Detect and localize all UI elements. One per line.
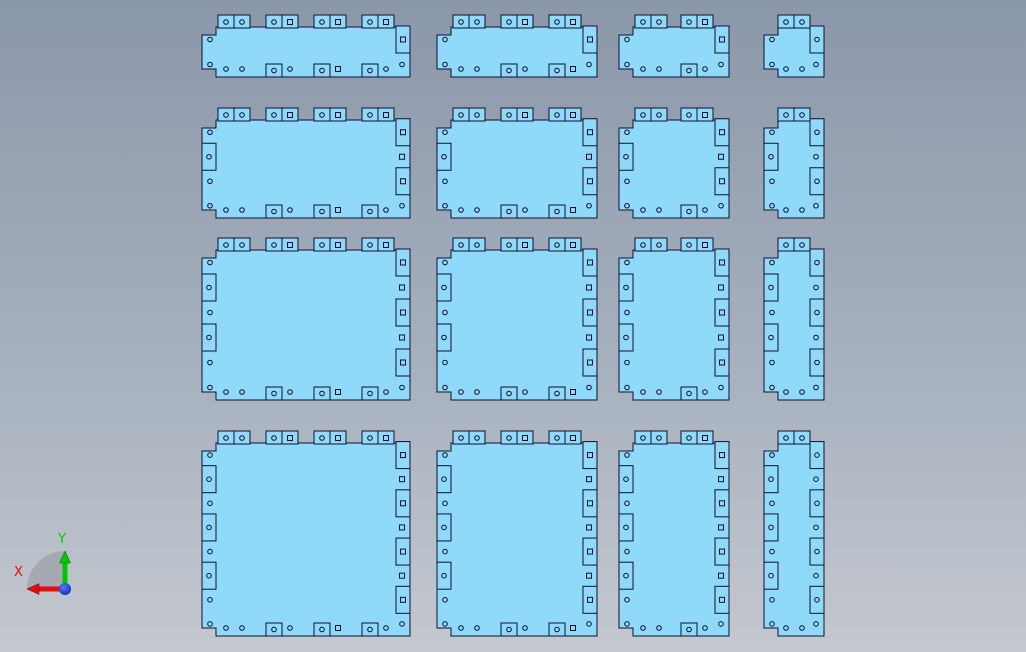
plate-r3c1[interactable] <box>202 238 410 400</box>
plate-r2c3[interactable] <box>619 108 729 218</box>
plate-r1c4[interactable] <box>764 15 824 77</box>
plate-r3c4[interactable] <box>764 238 824 400</box>
plate-r1c1[interactable] <box>202 15 410 77</box>
plate-r4c2[interactable] <box>437 431 597 636</box>
plate-r4c1[interactable] <box>202 431 410 636</box>
x-axis-label: X <box>14 565 23 580</box>
plate-r3c3[interactable] <box>619 238 729 400</box>
plate-r3c2[interactable] <box>437 238 597 400</box>
plate-r2c2[interactable] <box>437 108 597 218</box>
plates-layer <box>202 15 824 636</box>
parts-canvas: X Y <box>0 0 1026 652</box>
plate-r1c2[interactable] <box>437 15 597 77</box>
plate-r4c4[interactable] <box>764 431 824 636</box>
plate-r4c3[interactable] <box>619 431 729 636</box>
y-axis-label: Y <box>57 532 66 547</box>
origin-triad: X Y <box>14 532 71 595</box>
origin-ball <box>59 583 71 595</box>
triad-sector-shade <box>27 551 65 589</box>
cad-viewport[interactable]: X Y <box>0 0 1026 652</box>
plate-r2c4[interactable] <box>764 108 824 218</box>
plate-r2c1[interactable] <box>202 108 410 218</box>
plate-r1c3[interactable] <box>619 15 729 77</box>
